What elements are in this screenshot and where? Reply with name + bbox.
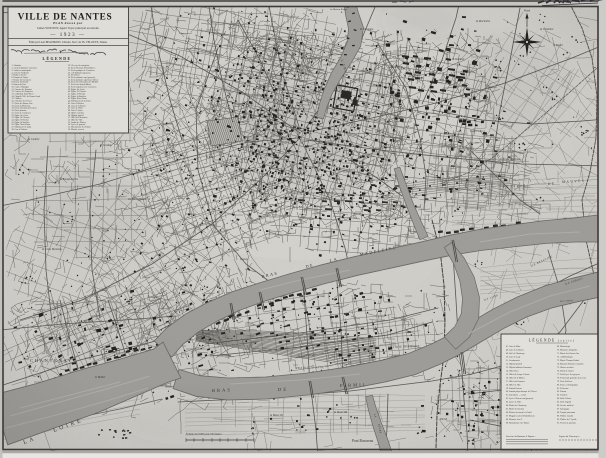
- svg-text:74. Muséum d’histoire naturell: 74. Muséum d’histoire naturelle: [557, 363, 584, 365]
- svg-text:48. Gare de la Bourse: 48. Gare de la Bourse: [506, 350, 524, 352]
- svg-text:56. Marché couvert: 56. Marché couvert: [68, 129, 84, 131]
- svg-text:56. Hôtel de la Marine: 56. Hôtel de la Marine: [506, 377, 525, 379]
- svg-text:57. Hôtel des Douanes: 57. Hôtel des Douanes: [506, 381, 525, 383]
- svg-text:70. Monnaies (chapelle): 70. Monnaies (chapelle): [557, 349, 577, 352]
- svg-text:84. Salle Colbert: 84. Salle Colbert: [557, 398, 571, 400]
- svg-text:50. Gare de Legé: 50. Gare de Legé: [506, 355, 520, 358]
- svg-text:88. Temple protestant: 88. Temple protestant: [557, 412, 575, 414]
- svg-text:83. Fonderie: 83. Fonderie: [557, 395, 568, 397]
- svg-text:49. Salé de Chantenay: 49. Salé de Chantenay: [506, 353, 526, 355]
- svg-text:59. Institut Pasteur: 59. Institut Pasteur: [506, 388, 522, 390]
- svg-text:72. et Bibliothèque: 72. et Bibliothèque: [557, 355, 573, 358]
- svg-text:64. Mairie de Chantenay: 64. Mairie de Chantenay: [506, 405, 528, 407]
- svg-text:71. Musée des Beaux-Arts: 71. Musée des Beaux-Arts: [557, 352, 579, 355]
- svg-text:68. Monumᵗ Jean V: 68. Monumᵗ Jean V: [506, 418, 523, 421]
- svg-text:28. Gare d’Orléans: 28. Gare d’Orléans: [12, 129, 28, 131]
- svg-text:Lignes de Tramways :: Lignes de Tramways :: [558, 435, 580, 438]
- svg-text:61. Intendance — Génie: 61. Intendance — Génie: [506, 395, 526, 397]
- svg-text:Édité par Léon BEAUMONT, Libra: Édité par Léon BEAUMONT, Libraire, Succʳ…: [29, 41, 107, 44]
- svg-text:58. Hôtel de Ville: 58. Hôtel de Ville: [506, 384, 521, 386]
- svg-text:55. Hôtel du Corps d’Armée: 55. Hôtel du Corps d’Armée: [506, 373, 530, 376]
- svg-text:91. Trésorerie générale: 91. Trésorerie générale: [557, 422, 576, 425]
- svg-text:87. Synagogue: 87. Synagogue: [557, 408, 569, 411]
- svg-text:67. Magasin central d’habillem: 67. Magasin central d’habillement: [506, 415, 535, 418]
- svg-text:54. Hôtel Dieu: 54. Hôtel Dieu: [506, 370, 518, 372]
- svg-text:76. Palais de Justice: 76. Palais de Justice: [557, 370, 574, 372]
- svg-text:79. Porte St-Pierre: 79. Porte St-Pierre: [557, 381, 572, 383]
- svg-text:63. Lycée de filles: 63. Lycée de filles: [506, 401, 521, 404]
- svg-text:89. Théâtre Graslin: 89. Théâtre Graslin: [557, 416, 573, 418]
- svg-text:51. Gendarmerie: 51. Gendarmerie: [506, 360, 520, 362]
- svg-text:75. Œuvres sociales: 75. Œuvres sociales: [557, 367, 574, 369]
- svg-text:73. Musée Thomas Dobrée: 73. Musée Thomas Dobrée: [557, 360, 580, 362]
- svg-text:65. Mairie de Doulon: 65. Mairie de Doulon: [506, 409, 524, 411]
- svg-text:82. Prisons: 82. Prisons: [557, 391, 566, 393]
- svg-text:77. Petit Lycée des garçons: 77. Petit Lycée des garçons: [557, 373, 580, 376]
- svg-text:86. Service médical: 86. Service médical: [557, 405, 574, 407]
- svg-text:85. Salle Ségand: 85. Salle Ségand: [557, 401, 572, 404]
- svg-text:PLAN dressé par: PLAN dressé par: [53, 21, 83, 25]
- svg-text:— 1923 —: — 1923 —: [49, 33, 85, 38]
- svg-text:78. Promenade générale du Leva: 78. Promenade générale du Levant: [557, 376, 586, 379]
- svg-text:69. Minéralogie: 69. Minéralogie: [557, 345, 570, 348]
- svg-text:LÉGENDE: LÉGENDE: [42, 56, 71, 61]
- svg-text:60. Institut polytechnique de: 60. Institut polytechnique de l’Ouest: [506, 390, 537, 393]
- svg-text:52. Hôpital général: 52. Hôpital général: [506, 362, 522, 365]
- svg-text:66. Maison de travail et d’arr: 66. Maison de travail et d’arrêt: [506, 412, 532, 414]
- svg-text:47. Gare de Mine: 47. Gare de Mine: [506, 346, 521, 348]
- svg-text:Services de Bateaux à Vapeur :: Services de Bateaux à Vapeur :: [506, 435, 536, 438]
- svg-text:81. Préfecture: 81. Préfecture: [557, 387, 569, 390]
- svg-text:90. Théâtre de l’Apollo: 90. Théâtre de l’Apollo: [557, 418, 576, 421]
- svg-text:69. Manufacture des Tabacs: 69. Manufacture des Tabacs: [506, 422, 529, 425]
- svg-text:62. Lycée Clémenceau (garçons): 62. Lycée Clémenceau (garçons): [506, 397, 534, 400]
- svg-text:80. Postes et Télégraphes: 80. Postes et Télégraphes: [557, 383, 578, 386]
- svg-text:53. Hôpital militaire Broussai: 53. Hôpital militaire Broussais: [506, 367, 532, 369]
